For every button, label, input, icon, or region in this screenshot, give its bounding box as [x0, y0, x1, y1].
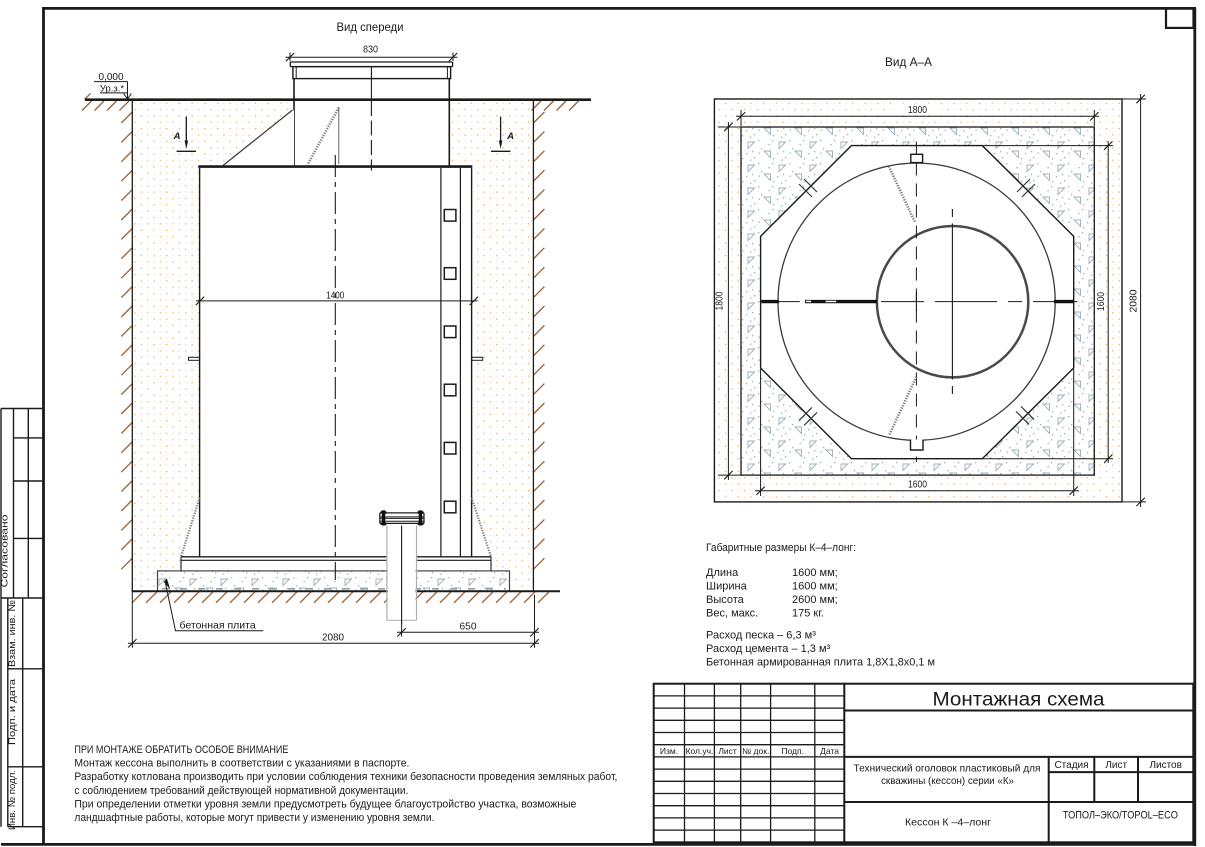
- svg-text:бетонная плита: бетонная плита: [180, 620, 256, 632]
- svg-text:1800: 1800: [714, 291, 726, 310]
- svg-text:Ур.з.*: Ур.з.*: [100, 84, 125, 95]
- svg-text:Ширина: Ширина: [706, 581, 748, 593]
- svg-text:1600: 1600: [1095, 292, 1107, 311]
- svg-text:Вид А–А: Вид А–А: [885, 55, 932, 69]
- svg-text:Расход цемента – 1,3 м³: Расход цемента – 1,3 м³: [706, 643, 831, 655]
- svg-text:Листов: Листов: [1149, 760, 1182, 771]
- svg-text:ПРИ МОНТАЖЕ ОБРАТИТЬ ОСОБОЕ ВН: ПРИ МОНТАЖЕ ОБРАТИТЬ ОСОБОЕ ВНИМАНИЕ: [74, 744, 288, 756]
- svg-text:Высота: Высота: [706, 594, 745, 606]
- svg-text:Лист: Лист: [1105, 760, 1127, 771]
- svg-text:№ док.: № док.: [742, 746, 769, 756]
- svg-text:Инв. № подл.: Инв. № подл.: [7, 770, 18, 830]
- svg-text:Дата: Дата: [820, 746, 839, 756]
- svg-text:Габаритные размеры К–4–лонг:: Габаритные размеры К–4–лонг:: [706, 542, 856, 554]
- svg-text:Вид спереди: Вид спереди: [337, 20, 404, 34]
- svg-text:Монтаж кессона выполнить в соо: Монтаж кессона выполнить в соответствии …: [74, 758, 409, 770]
- svg-text:Изм.: Изм.: [660, 746, 678, 756]
- svg-text:Кол.уч.: Кол.уч.: [686, 746, 714, 756]
- svg-text:1400: 1400: [326, 290, 344, 302]
- svg-text:с соблюдением требований дейст: с соблюдением требований действующей нор…: [74, 785, 408, 797]
- svg-text:Взам. инв. №: Взам. инв. №: [7, 600, 18, 667]
- svg-text:1600: 1600: [908, 479, 927, 491]
- svg-text:Технический оголовок пластиков: Технический оголовок пластиковый для: [854, 763, 1041, 775]
- svg-text:A: A: [506, 131, 514, 142]
- svg-text:Разработку котлована производи: Разработку котлована производить при усл…: [74, 771, 617, 783]
- svg-text:0,000: 0,000: [98, 72, 123, 83]
- svg-text:Лист: Лист: [718, 746, 737, 756]
- svg-text:2080: 2080: [322, 632, 344, 644]
- svg-text:Монтажная схема: Монтажная схема: [933, 689, 1105, 711]
- svg-text:Стадия: Стадия: [1054, 760, 1088, 771]
- svg-text:1800: 1800: [908, 104, 927, 116]
- svg-text:830: 830: [363, 44, 378, 56]
- svg-text:2080: 2080: [1128, 289, 1140, 312]
- svg-text:Подп. и дата: Подп. и дата: [7, 678, 18, 745]
- svg-text:1600 мм;: 1600 мм;: [792, 567, 838, 579]
- svg-text:При определении отметки уровня: При определении отметки уровня земли пре…: [74, 798, 576, 810]
- svg-text:Бетонная армированная плита 1,: Бетонная армированная плита 1,8Х1,8х0,1 …: [706, 657, 935, 669]
- svg-text:Подп.: Подп.: [781, 746, 804, 756]
- svg-text:Согласовано: Согласовано: [0, 515, 10, 588]
- svg-text:Длина: Длина: [706, 567, 739, 579]
- svg-text:1600 мм;: 1600 мм;: [792, 581, 838, 593]
- svg-text:Вес, макс.: Вес, макс.: [706, 607, 758, 619]
- svg-text:ТОПОЛ–ЭКО/TOPOL–ECO: ТОПОЛ–ЭКО/TOPOL–ECO: [1063, 810, 1178, 822]
- svg-text:650: 650: [460, 621, 477, 633]
- svg-text:скважины (кессон) серии «К»: скважины (кессон) серии «К»: [881, 775, 1014, 787]
- svg-text:Расход песка – 6,3 м³: Расход песка – 6,3 м³: [706, 630, 816, 642]
- svg-text:2600 мм;: 2600 мм;: [792, 594, 838, 606]
- svg-text:A: A: [173, 131, 181, 142]
- svg-text:175 кг.: 175 кг.: [792, 607, 824, 619]
- svg-text:ландшафтные работы, которые мо: ландшафтные работы, которые могут привес…: [74, 812, 434, 824]
- svg-text:Кессон К –4–лонг: Кессон К –4–лонг: [905, 817, 991, 829]
